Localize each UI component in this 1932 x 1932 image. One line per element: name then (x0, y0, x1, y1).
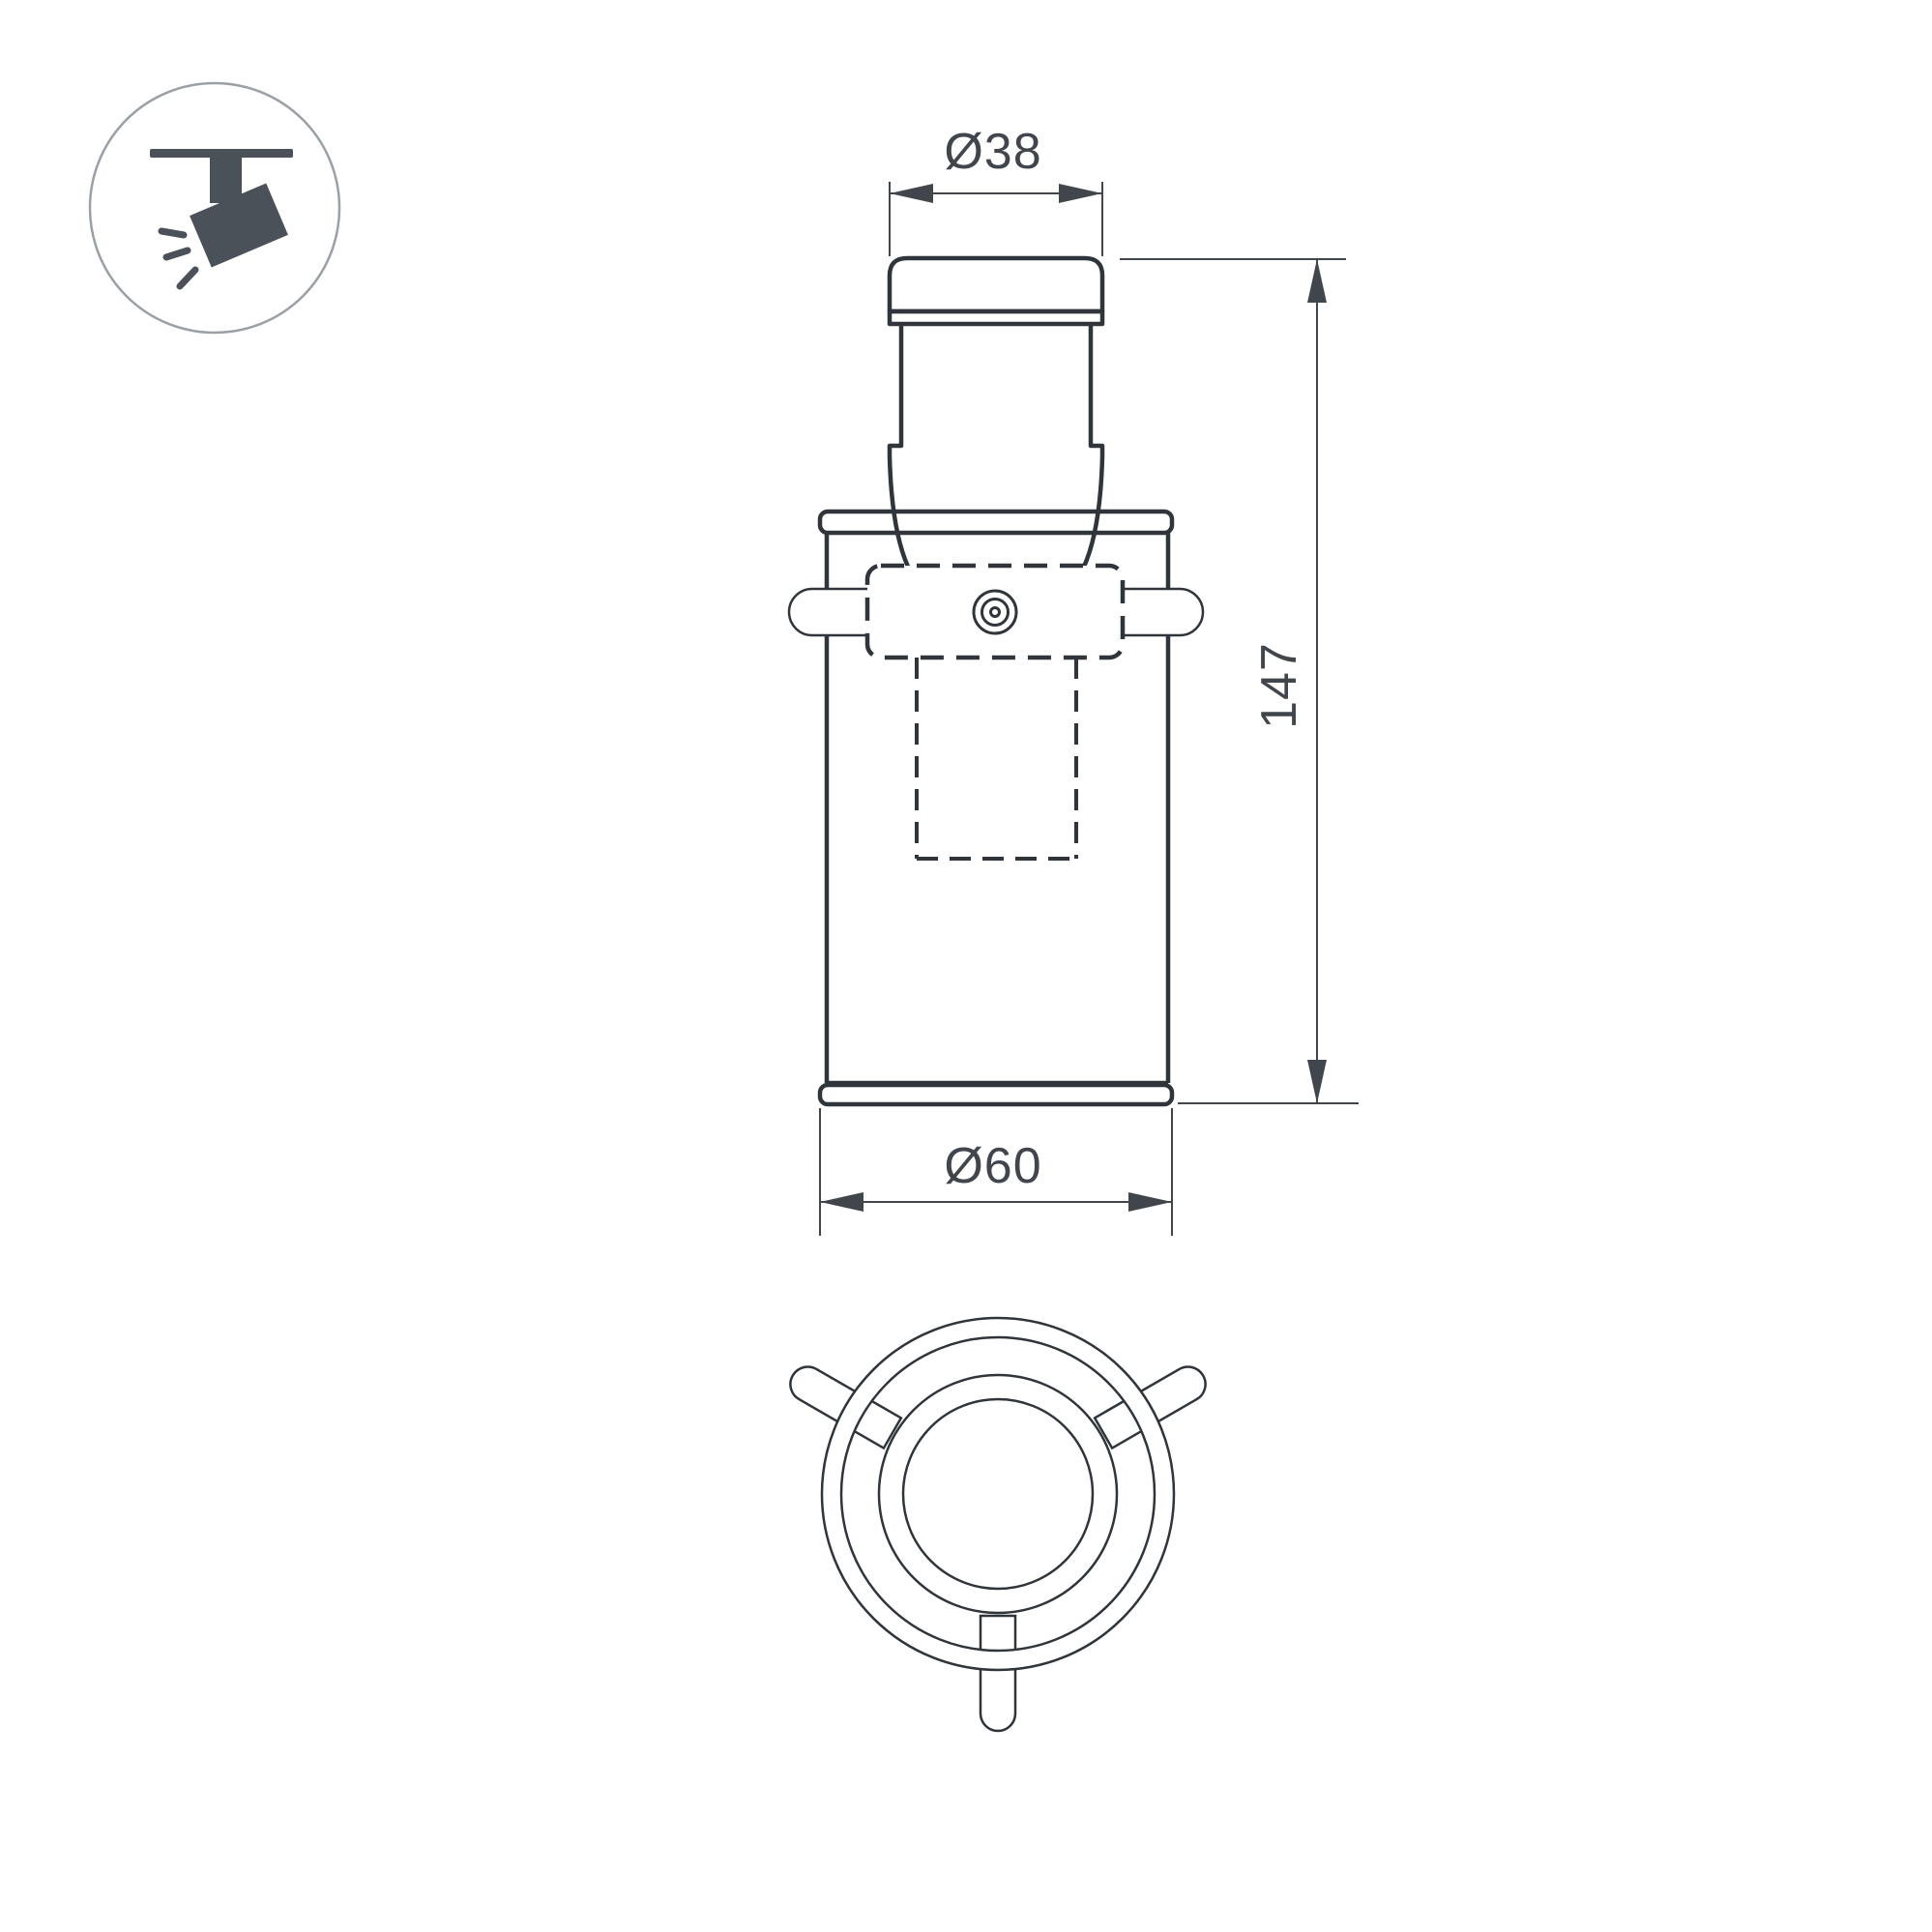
dim147-arrow-top (1307, 259, 1327, 303)
dim38-arrow-right (1059, 184, 1102, 203)
drawing-page: Ø38 147 Ø60 (0, 0, 1932, 1932)
dim-label-top-diameter: Ø38 (944, 123, 1041, 181)
dimension-top-diameter (890, 182, 1102, 256)
swivel-bracket-hidden (867, 566, 1123, 658)
cap-top (890, 258, 1102, 311)
dim60-arrow-right (1128, 1192, 1172, 1212)
inner-housing-hidden (917, 658, 1076, 859)
cap-band (890, 311, 1102, 324)
plan-circle-3 (879, 1375, 1117, 1613)
pivot-pin-left (789, 589, 872, 635)
dim-label-height: 147 (1250, 642, 1308, 729)
dim147-lines (1120, 259, 1359, 1103)
dim147-arrow-bottom (1307, 1060, 1327, 1103)
neck-right (1091, 324, 1102, 456)
bottom-view (784, 1318, 1212, 1731)
plan-circle-inner (903, 1399, 1093, 1589)
dimension-height (1120, 259, 1359, 1103)
track-spotlight-icon (90, 83, 339, 333)
plan-circle-2 (841, 1337, 1155, 1651)
dim-label-bottom-diameter: Ø60 (944, 1137, 1041, 1195)
front-view (789, 258, 1203, 1104)
neck-left (890, 324, 901, 456)
technical-drawing (0, 0, 1932, 1932)
pivot-pin-right (1120, 589, 1203, 635)
top-flange (820, 512, 1172, 533)
plan-pin-bottom (981, 1616, 1015, 1731)
bottom-flange (820, 1085, 1172, 1104)
dim60-arrow-left (820, 1192, 864, 1212)
dim38-arrow-left (890, 184, 933, 203)
